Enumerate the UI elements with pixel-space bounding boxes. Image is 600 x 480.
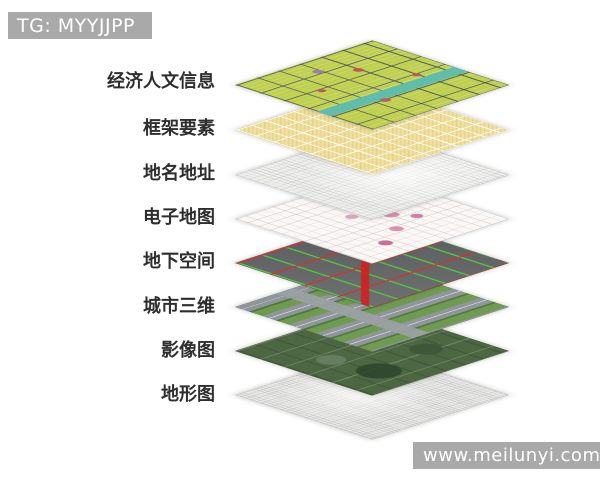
watermark-website-text: www.meilunyi.com: [423, 445, 600, 466]
gis-layers-diagram: TG: MYYJJPP 经济人文信息 框架要素 地名地址 电子地图 地下空间 城…: [0, 0, 600, 480]
watermark-website: www.meilunyi.com: [413, 442, 600, 469]
layer-label-electronic-map: 电子地图: [30, 205, 215, 231]
layer-label-topographic-map: 地形图: [30, 382, 215, 408]
layer-label-imagery-map: 影像图: [30, 338, 215, 364]
layer-label-underground-space: 地下空间: [30, 249, 215, 275]
layer-label-economic-humanities-info: 经济人文信息: [30, 69, 215, 95]
layer-label-place-names-addresses: 地名地址: [30, 161, 215, 187]
watermark-telegram-text: TG: MYYJJPP: [17, 15, 135, 37]
layer-label-framework-elements: 框架要素: [30, 116, 215, 142]
watermark-telegram: TG: MYYJJPP: [8, 12, 152, 39]
layer-label-urban-3d: 城市三维: [30, 294, 215, 320]
